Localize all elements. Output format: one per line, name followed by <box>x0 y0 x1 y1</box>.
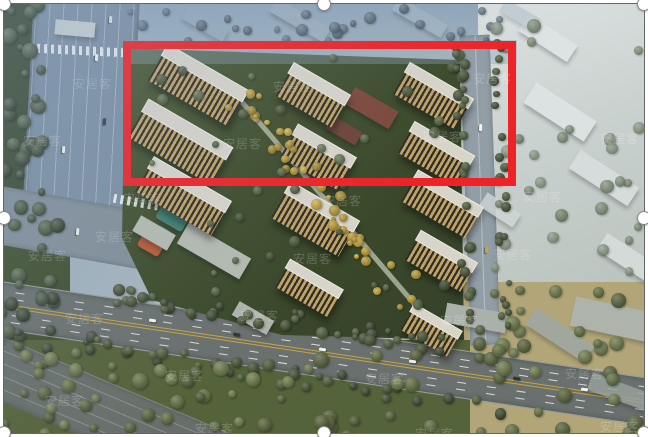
tree <box>408 333 415 340</box>
tree <box>529 366 541 378</box>
watermark-text: 安居客 <box>565 365 604 382</box>
tree <box>235 213 244 222</box>
watermark-text: 安居客 <box>28 247 67 264</box>
tree <box>527 19 541 33</box>
tree <box>555 422 570 434</box>
tree <box>20 389 28 397</box>
tree <box>534 407 543 416</box>
tree <box>85 345 95 355</box>
watermark-text: 安居客 <box>73 75 112 92</box>
tree <box>50 218 65 233</box>
tree <box>16 170 25 179</box>
tree <box>291 315 299 323</box>
watermark-text: 安居客 <box>95 228 134 245</box>
tree <box>3 98 15 110</box>
watermark-text: 安居客 <box>165 367 204 384</box>
tree <box>282 376 294 388</box>
building-faint <box>54 19 95 37</box>
vehicle <box>75 228 79 235</box>
tree <box>257 418 272 433</box>
tree <box>14 329 22 337</box>
tree <box>438 334 445 341</box>
tree <box>361 387 370 396</box>
tree <box>495 238 503 246</box>
tree <box>516 307 524 315</box>
tree <box>224 15 231 22</box>
selection-handle-top-right[interactable] <box>637 0 648 11</box>
tree <box>113 299 121 307</box>
tree <box>609 336 624 351</box>
tree <box>61 379 75 393</box>
selection-handle-bottom-left[interactable] <box>0 426 11 437</box>
watermark-text: 安居客 <box>473 70 512 87</box>
tree <box>246 372 260 386</box>
tree <box>17 115 31 129</box>
watermark-text: 安居客 <box>65 310 104 327</box>
tree <box>69 363 83 377</box>
tree <box>364 12 376 24</box>
aerial-render-scene: 安居客安居客安居客安居客安居客安居客安居客安居客安居客安居客安居客安居客安居客安… <box>3 3 645 434</box>
tree <box>301 10 310 19</box>
tree <box>137 20 148 31</box>
tree <box>600 180 614 194</box>
tree <box>195 392 205 402</box>
tree <box>473 337 486 350</box>
tree <box>304 364 314 374</box>
tree <box>502 301 510 309</box>
tree <box>527 37 536 46</box>
tree <box>381 394 390 403</box>
watermark-text: 安居客 <box>423 128 462 145</box>
tree <box>411 270 420 279</box>
tree <box>180 349 188 357</box>
tree <box>350 20 356 26</box>
tree <box>574 326 585 337</box>
tree <box>491 263 500 272</box>
tree <box>460 267 469 276</box>
tree <box>490 22 503 35</box>
tree <box>186 308 196 318</box>
tree <box>349 382 357 390</box>
tree <box>606 373 619 386</box>
watermark-text: 安居客 <box>600 130 639 147</box>
vehicle <box>108 16 112 23</box>
tree <box>5 297 18 310</box>
watermark-text: 安居客 <box>365 370 404 387</box>
watermark-text: 安居客 <box>23 132 62 149</box>
tree <box>170 395 184 409</box>
tree <box>336 229 342 235</box>
tree <box>113 284 125 296</box>
tree <box>160 299 167 306</box>
vehicle <box>102 118 106 125</box>
tree <box>44 352 58 366</box>
selection-handle-bottom-right[interactable] <box>637 426 648 437</box>
watermark-text: 安居客 <box>273 78 312 95</box>
watermark-text: 安居客 <box>223 135 262 152</box>
tree <box>38 188 45 195</box>
tree <box>496 361 511 376</box>
tree <box>397 304 403 310</box>
tree <box>132 373 148 389</box>
tree <box>557 388 572 403</box>
watermark-text: 安居客 <box>523 188 562 205</box>
selection-handle-middle-right[interactable] <box>637 211 648 225</box>
tree <box>141 408 155 422</box>
vehicle <box>94 54 98 61</box>
tree <box>352 237 357 242</box>
selected-image[interactable]: 安居客安居客安居客安居客安居客安居客安居客安居客安居客安居客安居客安居客安居客安… <box>3 3 645 434</box>
tree <box>634 46 643 55</box>
tree <box>161 412 174 425</box>
tree <box>253 186 262 195</box>
tree <box>361 247 370 256</box>
tree <box>464 291 474 301</box>
watermark-text: 安居客 <box>440 312 479 329</box>
image-canvas: 安居客安居客安居客安居客安居客安居客安居客安居客安居客安居客安居客安居客安居客安… <box>0 0 648 437</box>
tree <box>415 20 425 30</box>
tree <box>557 132 567 142</box>
tree <box>103 339 113 349</box>
tree <box>316 327 328 339</box>
tree <box>547 232 558 243</box>
tree <box>206 310 217 321</box>
tree <box>124 346 133 355</box>
tree <box>280 320 291 331</box>
tree <box>413 299 424 310</box>
tree <box>301 382 311 392</box>
tree <box>329 22 340 33</box>
watermark-text: 安居客 <box>123 190 162 207</box>
tree <box>216 302 223 309</box>
annotation-rectangle <box>123 41 516 186</box>
tree <box>22 43 38 59</box>
tree <box>349 416 359 426</box>
watermark-text: 安居客 <box>323 192 362 209</box>
tree <box>232 257 239 264</box>
tree <box>17 24 28 35</box>
tree <box>266 252 274 260</box>
tree <box>237 374 244 381</box>
tree <box>311 199 321 209</box>
tree <box>505 424 519 434</box>
tree <box>296 24 308 36</box>
selection-handle-bottom-center[interactable] <box>317 426 331 437</box>
watermark-text: 安居客 <box>600 418 639 434</box>
tree <box>435 347 443 355</box>
watermark-text: 安居客 <box>293 250 332 267</box>
tree <box>7 138 19 150</box>
tree <box>91 394 100 403</box>
tree <box>262 359 274 371</box>
tree <box>492 344 505 357</box>
watermark-text: 安居客 <box>493 246 532 263</box>
tree <box>27 214 36 223</box>
tree <box>625 236 634 245</box>
tree <box>462 202 470 210</box>
tree <box>14 200 29 215</box>
tree <box>316 373 323 380</box>
tree <box>495 408 506 419</box>
tree <box>625 267 634 276</box>
watermark-text: 安居客 <box>45 392 84 409</box>
tree <box>341 430 353 434</box>
tree <box>555 209 568 222</box>
tree <box>465 242 476 253</box>
watermark-text: 安居客 <box>415 425 454 434</box>
tree <box>322 376 333 387</box>
tree <box>21 70 29 78</box>
tree <box>361 256 371 266</box>
tree <box>24 6 37 19</box>
tree <box>371 350 382 361</box>
tree <box>404 377 419 392</box>
tree <box>457 27 465 35</box>
tree <box>45 325 56 336</box>
watermark-text: 安居客 <box>240 307 279 324</box>
tree <box>232 25 238 31</box>
tree <box>371 282 377 288</box>
tree <box>506 280 512 286</box>
watermark-text: 安居客 <box>195 420 234 434</box>
tree <box>529 150 539 160</box>
vehicle <box>484 246 487 253</box>
tree <box>274 26 280 32</box>
tree <box>383 284 390 291</box>
tree <box>89 424 97 432</box>
